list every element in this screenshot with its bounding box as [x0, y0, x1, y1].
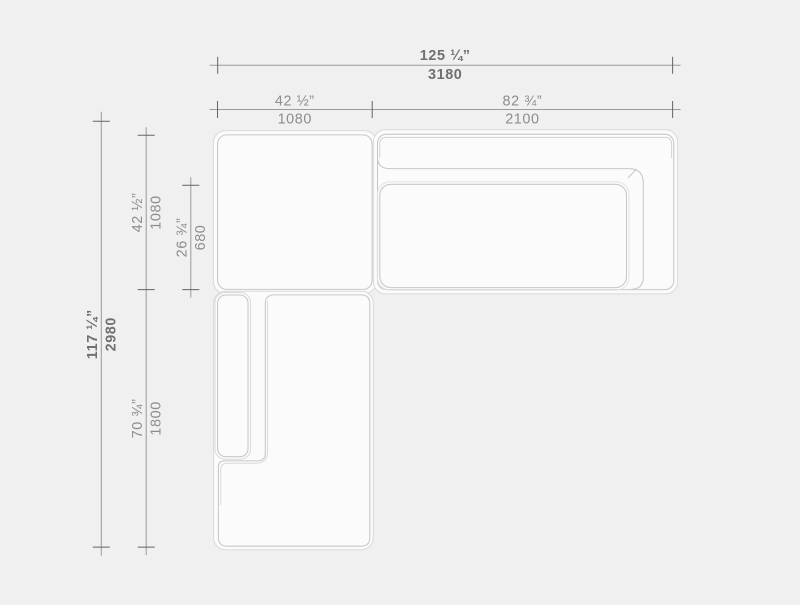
svg-text:1080: 1080: [278, 111, 312, 127]
svg-text:3180: 3180: [428, 67, 462, 83]
svg-text:2100: 2100: [505, 111, 539, 127]
svg-text:1800: 1800: [149, 401, 165, 435]
svg-text:1080: 1080: [148, 195, 164, 229]
svg-text:117 ¼”: 117 ¼”: [85, 309, 101, 359]
svg-text:2980: 2980: [104, 317, 120, 351]
svg-text:26 ¾”: 26 ¾”: [175, 218, 191, 258]
svg-text:42 ½”: 42 ½”: [275, 93, 315, 109]
svg-text:680: 680: [193, 225, 209, 251]
svg-text:42 ½”: 42 ½”: [130, 193, 146, 233]
svg-text:70 ¾”: 70 ¾”: [130, 398, 146, 438]
svg-text:82 ¾”: 82 ¾”: [502, 93, 542, 109]
svg-text:125 ¼”: 125 ¼”: [420, 48, 471, 64]
